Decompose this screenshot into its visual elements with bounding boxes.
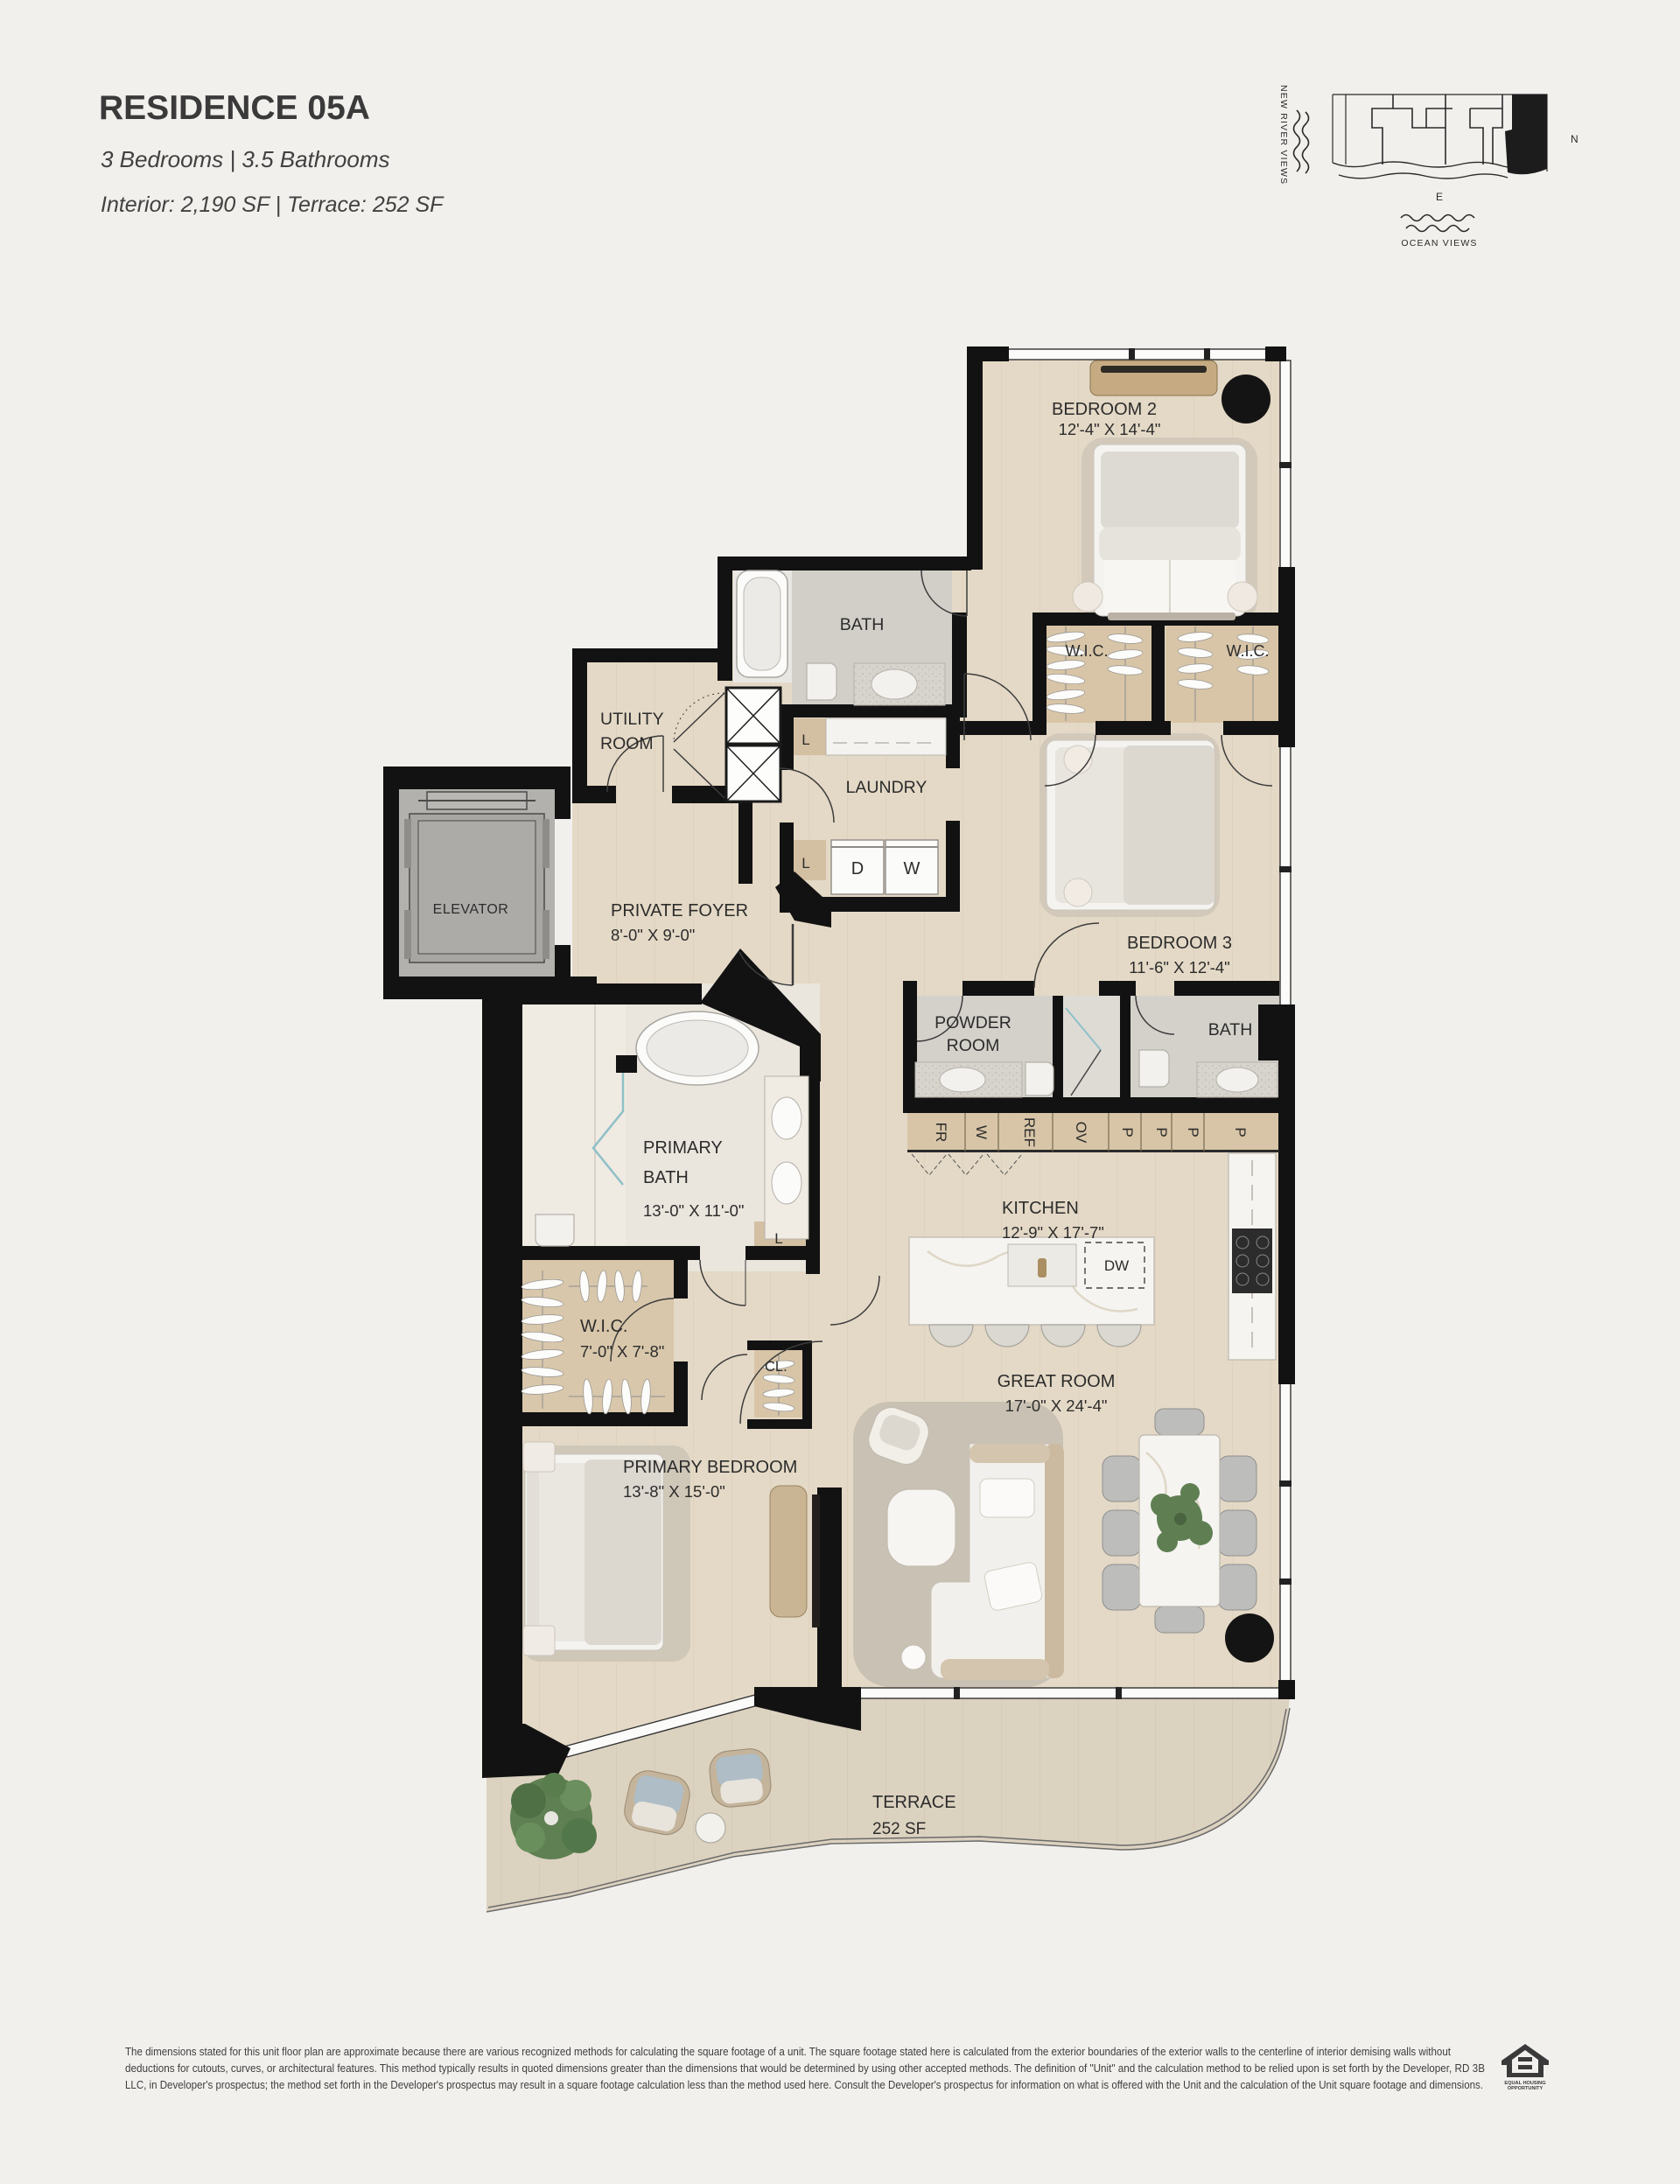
svg-text:BATH: BATH [1208,1020,1253,1039]
svg-text:L: L [801,855,809,871]
svg-text:REF: REF [1021,1117,1038,1147]
svg-text:deductions for cutouts, curves: deductions for cutouts, curves, or archi… [125,2061,1485,2075]
svg-text:P: P [1153,1127,1170,1137]
svg-text:BEDROOM 2: BEDROOM 2 [1052,400,1157,419]
svg-text:13'-8" X 15'-0": 13'-8" X 15'-0" [623,1482,725,1501]
svg-text:NEW RIVER VIEWS: NEW RIVER VIEWS [1278,85,1289,185]
svg-text:W.I.C.: W.I.C. [1066,642,1109,660]
svg-text:CL.: CL. [765,1359,787,1375]
svg-text:ELEVATOR: ELEVATOR [433,902,509,917]
svg-text:POWDER: POWDER [934,1013,1011,1032]
svg-text:N: N [1571,133,1578,145]
svg-text:P: P [1185,1127,1201,1137]
svg-text:PRIMARY: PRIMARY [643,1138,723,1158]
svg-text:11'-6" X 12'-4": 11'-6" X 12'-4" [1129,958,1230,976]
svg-text:LLC, in Developer's prospectus: LLC, in Developer's prospectus; the meth… [125,2078,1483,2091]
svg-text:OV: OV [1073,1122,1089,1144]
svg-text:ROOM: ROOM [947,1036,1000,1055]
svg-text:P: P [1232,1127,1249,1137]
svg-text:Interior: 2,190 SF | Terrace:: Interior: 2,190 SF | Terrace: 252 SF [101,192,444,217]
svg-text:W: W [904,859,920,878]
svg-text:W: W [973,1125,990,1139]
svg-text:17'-0" X 24'-4": 17'-0" X 24'-4" [1005,1396,1108,1415]
svg-text:P: P [1119,1127,1136,1137]
svg-text:L: L [774,1230,782,1247]
svg-text:OPPORTUNITY: OPPORTUNITY [1508,2086,1543,2091]
svg-text:OCEAN VIEWS: OCEAN VIEWS [1401,238,1477,248]
svg-text:ROOM: ROOM [600,734,654,753]
svg-text:252 SF: 252 SF [872,1820,926,1838]
svg-text:RESIDENCE 05A: RESIDENCE 05A [99,89,370,127]
svg-text:FR: FR [933,1123,949,1143]
svg-text:BATH: BATH [643,1168,689,1187]
svg-text:8'-0" X 9'-0": 8'-0" X 9'-0" [611,926,695,944]
svg-text:E: E [1436,191,1443,203]
svg-text:12'-4" X 14'-4": 12'-4" X 14'-4" [1059,420,1161,438]
svg-text:D: D [851,859,864,878]
svg-text:LAUNDRY: LAUNDRY [846,778,927,797]
svg-text:GREAT ROOM: GREAT ROOM [997,1372,1116,1391]
svg-text:L: L [801,731,809,748]
svg-text:BEDROOM 3: BEDROOM 3 [1127,934,1232,953]
svg-text:3 Bedrooms | 3.5 Bathrooms: 3 Bedrooms | 3.5 Bathrooms [101,146,389,172]
svg-text:KITCHEN: KITCHEN [1002,1199,1079,1218]
svg-text:TERRACE: TERRACE [872,1793,956,1812]
svg-text:7'-0" X 7'-8": 7'-0" X 7'-8" [580,1342,664,1361]
svg-text:UTILITY: UTILITY [600,710,664,729]
svg-text:W.I.C.: W.I.C. [1227,642,1270,660]
svg-text:12'-9" X 17'-7": 12'-9" X 17'-7" [1002,1223,1104,1242]
svg-text:PRIVATE FOYER: PRIVATE FOYER [611,901,748,920]
svg-text:DW: DW [1104,1257,1129,1274]
svg-text:W.I.C.: W.I.C. [580,1317,627,1336]
svg-text:BATH: BATH [840,615,885,634]
svg-text:PRIMARY BEDROOM: PRIMARY BEDROOM [623,1458,797,1477]
svg-text:The dimensions stated for this: The dimensions stated for this unit floo… [125,2045,1451,2058]
svg-text:13'-0" X 11'-0": 13'-0" X 11'-0" [643,1201,745,1220]
